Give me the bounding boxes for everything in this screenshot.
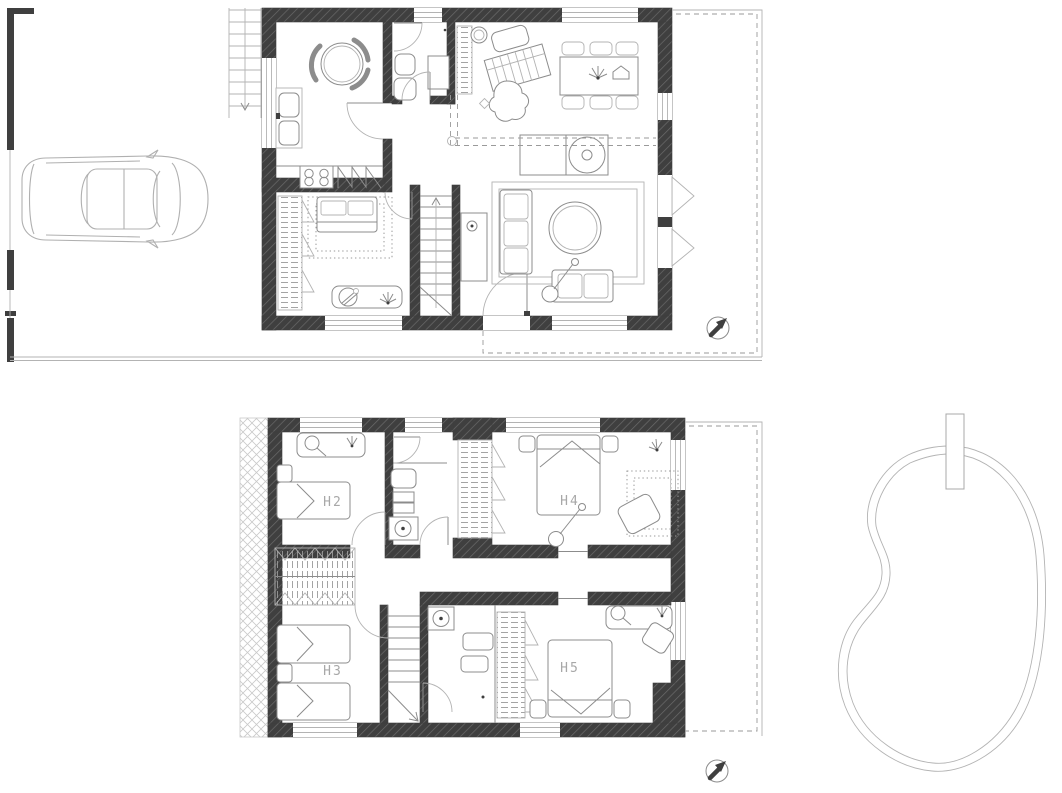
nightstand (614, 700, 630, 718)
shower (428, 56, 449, 89)
bedroom-door (385, 192, 412, 219)
kitchen (276, 40, 383, 188)
corridor-door-leaves (558, 552, 588, 599)
ground-floor-bedroom (278, 192, 412, 310)
washbasin (394, 78, 416, 100)
exterior-entry-steps (229, 8, 261, 118)
car-mirror-icon (147, 240, 158, 248)
stove (300, 166, 333, 188)
upper-floor-plan: H2 H4 (240, 418, 762, 782)
desk (297, 433, 365, 457)
chair (562, 42, 584, 55)
nightstand (602, 436, 618, 452)
chair (590, 42, 612, 55)
pool (838, 414, 1045, 771)
car (22, 150, 208, 248)
room-label-h3: H3 (323, 664, 343, 679)
door (420, 517, 448, 545)
plant-icon (649, 439, 662, 452)
living-room (492, 182, 644, 302)
diving-board (946, 414, 964, 489)
piano (478, 21, 551, 91)
bench (332, 286, 402, 308)
car-mirror-icon (147, 150, 158, 158)
single-bed (277, 683, 350, 720)
bathroom-lower (423, 607, 493, 712)
kitchen-sink (276, 88, 302, 148)
console-table (461, 213, 487, 281)
coffee-table (549, 202, 601, 254)
washbasin (463, 633, 493, 650)
terrace-french-doors (658, 175, 694, 268)
stool (471, 27, 487, 43)
room-label-h5: H5 (560, 661, 580, 676)
nightstand (519, 436, 535, 452)
wardrobe-h4 (458, 440, 505, 538)
dining-area (560, 42, 638, 109)
room-h3: H3 (277, 605, 388, 720)
north-arrow-icon (707, 317, 729, 339)
double-bed (548, 640, 612, 717)
bathroom-upper (389, 437, 448, 545)
sofa (500, 190, 532, 274)
roof-below-hatch (240, 418, 268, 737)
washing-machine (428, 607, 454, 630)
north-arrow-icon (706, 760, 728, 782)
chair (590, 96, 612, 109)
door (352, 512, 385, 545)
bookshelf (457, 26, 472, 94)
chair (311, 46, 320, 80)
floor-plan-drawing: H2 H4 (0, 0, 1062, 793)
staircase (420, 196, 452, 316)
chair (562, 96, 584, 109)
washbasin (393, 492, 414, 502)
wood-stove (520, 135, 608, 175)
sofa-bed (317, 197, 377, 232)
pouf (480, 99, 490, 109)
staircase (388, 616, 420, 721)
wardrobe-with-hangers (278, 196, 314, 310)
nightstand (277, 664, 292, 682)
wardrobe-h2-h3 (275, 548, 355, 605)
door (394, 437, 420, 463)
washing-machine (389, 517, 418, 540)
nightstand (277, 465, 292, 482)
kitchen-door (347, 103, 383, 139)
wc (394, 23, 449, 100)
terrace (685, 422, 762, 736)
toilet (395, 54, 415, 75)
floor-plan-sheet: H2 H4 (0, 0, 1062, 793)
chair (616, 42, 638, 55)
chair (616, 96, 638, 109)
ground-floor-plan (262, 8, 762, 357)
kitchen-table (321, 43, 363, 85)
nightstand (530, 700, 546, 718)
room-h2: H2 (277, 433, 385, 545)
loveseat (552, 270, 613, 302)
front-door (483, 272, 530, 330)
room-label-h2: H2 (323, 495, 343, 510)
room-h4: H4 (519, 435, 678, 547)
toilet (391, 469, 416, 488)
cabinet (461, 656, 488, 672)
armchair (616, 492, 662, 535)
room-label-h4: H4 (560, 494, 580, 509)
